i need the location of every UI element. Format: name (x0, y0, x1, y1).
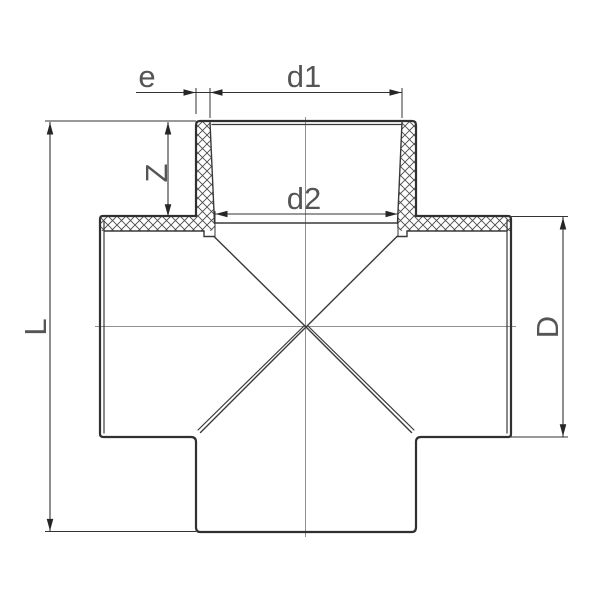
e-arrowhead (184, 89, 196, 96)
d1-right-arrowhead (390, 89, 402, 96)
d2-left-arrowhead (216, 211, 228, 218)
lower-left-diagonal-tangent (198, 326, 305, 431)
upper-left-diagonal (214, 237, 306, 328)
d-top-arrowhead (560, 218, 567, 230)
z-bottom-arrowhead (165, 204, 172, 216)
label-l: L (18, 318, 53, 335)
lower-left-diagonal (201, 327, 307, 433)
lower-right-diagonal (306, 327, 412, 433)
l-top-arrowhead (47, 123, 54, 135)
cross-fitting-drawing: e d1 d2 Z L D (0, 0, 600, 600)
upper-right-diagonal (306, 237, 397, 328)
dimension-z: Z (139, 122, 174, 217)
dimension-d2: d2 (215, 181, 398, 237)
d1-left-arrowhead (211, 89, 223, 96)
label-e: e (138, 59, 155, 94)
dimension-d: D (511, 217, 568, 438)
label-z: Z (139, 164, 174, 183)
l-bottom-arrowhead (47, 519, 54, 531)
label-d2: d2 (287, 181, 321, 216)
label-d1: d1 (287, 59, 321, 94)
lower-right-diagonal-tangent (308, 326, 415, 431)
dimension-e-d1: e d1 (136, 59, 402, 118)
left-bore-step (204, 231, 214, 237)
label-d: D (530, 316, 565, 338)
hatch-right-wall (397, 121, 510, 231)
d-bottom-arrowhead (560, 424, 567, 436)
d2-right-arrowhead (386, 211, 398, 218)
z-top-arrowhead (165, 123, 172, 135)
technical-drawing-canvas: e d1 d2 Z L D (0, 0, 600, 600)
